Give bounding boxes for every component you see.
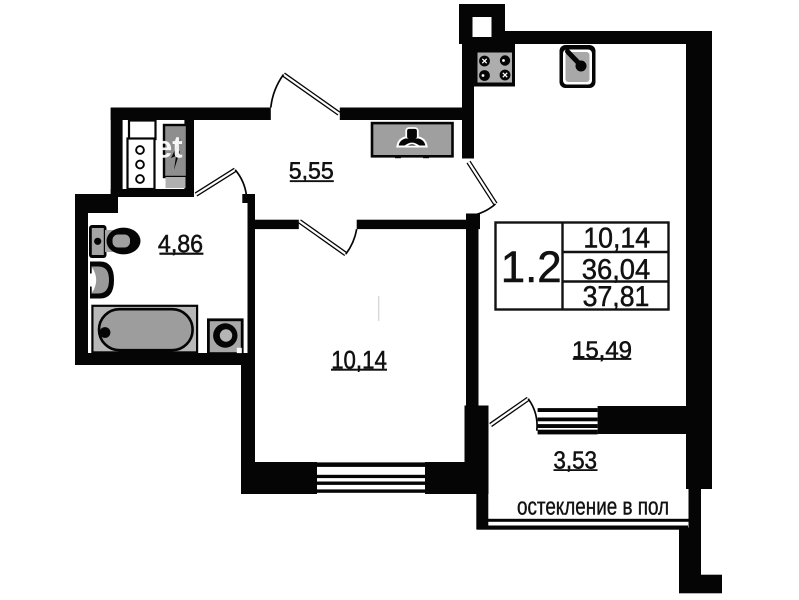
svg-text:1.2: 1.2	[501, 243, 562, 292]
svg-text:37,81: 37,81	[583, 281, 650, 313]
svg-text:10,14: 10,14	[583, 222, 650, 254]
svg-text:остекление в пол: остекление в пол	[517, 494, 669, 521]
svg-text:et: et	[155, 130, 183, 165]
